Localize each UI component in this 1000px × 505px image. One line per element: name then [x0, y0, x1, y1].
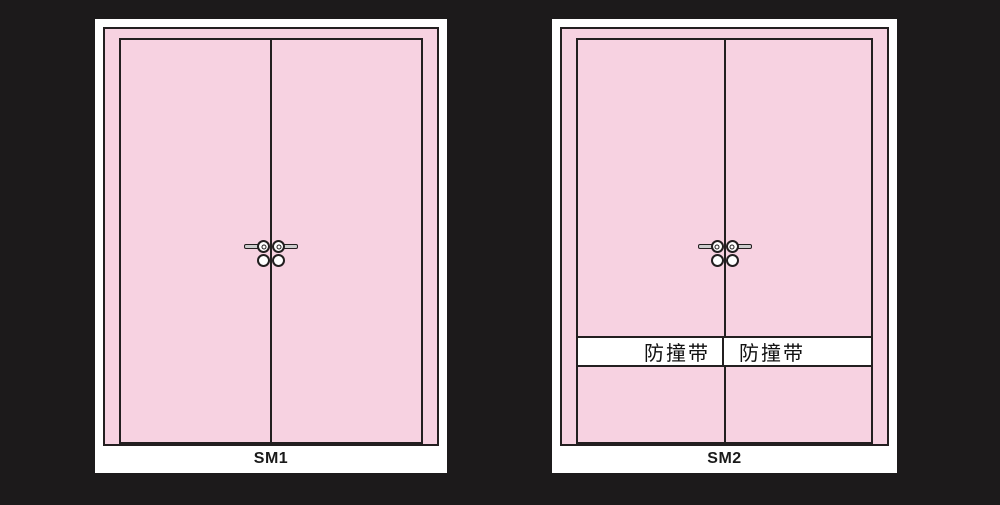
door-figure-sm2: 防撞带 防撞带 SM2 — [552, 19, 897, 473]
lock-cylinder-left-icon — [711, 254, 724, 267]
door-leaf-right — [725, 38, 874, 444]
door-label-sm1: SM1 — [95, 446, 447, 473]
impact-strip-left-label: 防撞带 — [644, 338, 710, 365]
door-leaf-left — [576, 38, 725, 444]
impact-strip-left: 防撞带 — [578, 338, 722, 365]
handle-spindle-icon — [715, 244, 720, 249]
door-frame: 防撞带 防撞带 — [560, 27, 889, 446]
door-frame — [103, 27, 439, 446]
lock-cylinder-right-icon — [272, 254, 285, 267]
lock-cylinder-left-icon — [257, 254, 270, 267]
impact-strip-right: 防撞带 — [722, 338, 871, 365]
handle-rose-left-icon — [711, 240, 724, 253]
handle-spindle-icon — [261, 244, 266, 249]
handle-spindle-icon — [276, 244, 281, 249]
door-leaf-right — [271, 38, 423, 444]
door-label-sm2: SM2 — [552, 446, 897, 473]
impact-strip-right-label: 防撞带 — [739, 338, 805, 365]
diagram-canvas: SM1 防撞带 防撞 — [0, 0, 1000, 505]
door-figure-sm1: SM1 — [95, 19, 447, 473]
door-leaves — [119, 38, 423, 444]
impact-strip-band: 防撞带 防撞带 — [576, 336, 873, 367]
handle-rose-left-icon — [257, 240, 270, 253]
door-leaves: 防撞带 防撞带 — [576, 38, 873, 444]
handle-rose-right-icon — [272, 240, 285, 253]
handle-spindle-icon — [730, 244, 735, 249]
handle-rose-right-icon — [726, 240, 739, 253]
door-leaf-left — [119, 38, 271, 444]
lock-cylinder-right-icon — [726, 254, 739, 267]
